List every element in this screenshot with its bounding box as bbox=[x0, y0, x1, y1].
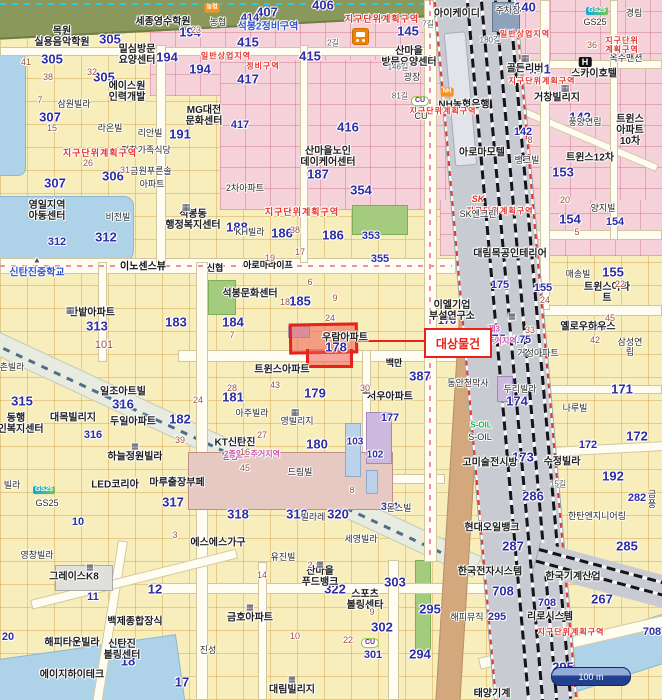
map-label: 동행 노인복지센터 bbox=[0, 413, 44, 435]
admin-boundary-line bbox=[0, 3, 430, 5]
map-label: 22 bbox=[343, 635, 353, 645]
map-label: 10 bbox=[72, 516, 84, 528]
map-label: 트윈스아파트 bbox=[580, 282, 635, 304]
map-label: 삼원빌라 bbox=[57, 99, 90, 109]
map-label: 316 bbox=[84, 429, 102, 441]
map-label: 155 bbox=[602, 266, 624, 281]
map-label: 307 bbox=[39, 111, 61, 126]
map-label: 42 bbox=[590, 335, 600, 345]
cu-logo: CU bbox=[361, 638, 379, 648]
map-label: 영창빌라 bbox=[20, 550, 53, 560]
map-label: 아주빌라 bbox=[235, 408, 268, 418]
route-line bbox=[0, 265, 452, 267]
map-label: 9 bbox=[332, 293, 337, 303]
target-property-label: 대상물건 bbox=[436, 335, 480, 352]
stream-centerline bbox=[0, 329, 476, 570]
map-label: 6 bbox=[307, 277, 312, 287]
map-label: 한밭아파트 bbox=[69, 307, 115, 318]
apartment-building bbox=[188, 452, 393, 510]
map-label: 176 bbox=[438, 315, 456, 327]
map-label: 트윈스아파트 bbox=[254, 364, 309, 375]
target-leader-line bbox=[357, 340, 424, 342]
map-label: 대목빌리지 bbox=[50, 412, 96, 423]
map-label: 170 bbox=[588, 321, 606, 333]
map-label: 282 bbox=[628, 492, 646, 504]
park bbox=[415, 560, 431, 652]
map-label: 43 bbox=[270, 380, 280, 390]
road bbox=[258, 562, 267, 700]
building-icon: ▦ bbox=[182, 202, 191, 212]
building bbox=[366, 470, 378, 494]
road bbox=[300, 45, 308, 263]
map-label: 옐로우하우스 bbox=[560, 321, 615, 332]
map-label: 금풍 bbox=[647, 489, 657, 509]
map-label: 하늘정원빌라 bbox=[107, 451, 162, 462]
map-label: 빌라 bbox=[4, 480, 21, 490]
map-label: 에이스원 인력개발 bbox=[109, 81, 146, 103]
building-icon: ▦ bbox=[291, 407, 300, 417]
map-label: 306 bbox=[102, 170, 124, 185]
building bbox=[55, 565, 113, 591]
building-icon: ▦ bbox=[66, 305, 75, 315]
map-label: 186 bbox=[271, 227, 293, 242]
map-label: 38 bbox=[43, 72, 53, 82]
map-label: 305 bbox=[99, 33, 121, 48]
map-label: 184 bbox=[222, 316, 244, 331]
train-wheel bbox=[356, 39, 359, 42]
map-label: 한탄엔지니어링 bbox=[568, 511, 626, 521]
apartment-building bbox=[497, 376, 513, 402]
map-label: 세영빌라 bbox=[344, 534, 377, 544]
map-label: 22 bbox=[615, 279, 625, 289]
map-label: 301 bbox=[364, 649, 382, 661]
map-label: 15 bbox=[47, 123, 57, 133]
map-label: 2 bbox=[307, 560, 312, 570]
map-label: KH빌라 bbox=[235, 227, 264, 237]
building-icon: ▦ bbox=[316, 561, 324, 570]
map-label: LED코리아 bbox=[91, 479, 139, 490]
map-label: 315 bbox=[11, 395, 33, 410]
target-parcel bbox=[306, 349, 353, 368]
map-label: 24 bbox=[325, 313, 335, 323]
map-label: 27 bbox=[257, 430, 267, 440]
map-label: 191 bbox=[169, 128, 191, 143]
map-label: 빌라레 bbox=[301, 512, 326, 522]
map-label: 185 bbox=[289, 295, 311, 310]
map-label: 9 bbox=[369, 607, 374, 617]
map-label: 32 bbox=[87, 67, 97, 77]
map-label: GS25 bbox=[35, 498, 58, 508]
route-line bbox=[429, 0, 431, 558]
building-icon: ▦ bbox=[288, 676, 296, 685]
map-label: 나루빌 bbox=[563, 403, 588, 413]
map-label: 삼성연립 bbox=[614, 337, 646, 357]
map-label: 7 bbox=[37, 95, 42, 105]
map-label: 31 bbox=[120, 165, 130, 175]
road bbox=[0, 47, 440, 56]
map-label: 179 bbox=[304, 387, 326, 402]
map-label: 186 bbox=[322, 229, 344, 244]
building bbox=[345, 423, 361, 477]
park bbox=[208, 280, 236, 315]
map-label: 3 bbox=[172, 530, 177, 540]
map-label: 대림빌리지 bbox=[269, 684, 315, 695]
building-icon: ▦ bbox=[246, 604, 254, 613]
water-body bbox=[0, 196, 134, 264]
map-label: 매송빌 bbox=[566, 269, 591, 279]
map-label: 라온빌 bbox=[98, 123, 123, 133]
map-label: 유진빌 bbox=[271, 552, 296, 562]
road bbox=[98, 262, 107, 362]
map-label: 305 bbox=[93, 71, 115, 86]
train-window bbox=[356, 32, 365, 37]
gs25-logo: GS25 bbox=[33, 486, 55, 494]
map-label: 28 bbox=[227, 383, 237, 393]
target-property-box: 대상물건 bbox=[424, 328, 492, 358]
map-label: 183 bbox=[165, 316, 187, 331]
water-body bbox=[0, 52, 26, 176]
map-label: 7 bbox=[229, 330, 234, 340]
map-label: 317 bbox=[162, 496, 184, 511]
map-label: 26 bbox=[83, 158, 93, 168]
map-label: 267 bbox=[591, 593, 613, 608]
map-label: 307 bbox=[44, 177, 66, 192]
map-label: 영빌리지 bbox=[280, 416, 313, 426]
scale-bar-label: 100 m bbox=[578, 672, 603, 682]
map-label: 180 bbox=[306, 438, 328, 453]
map-label: 10 bbox=[290, 631, 300, 641]
parking-building bbox=[492, 2, 520, 32]
road bbox=[388, 560, 399, 700]
road bbox=[540, 0, 550, 310]
scale-bar: 100 m bbox=[551, 667, 631, 686]
map-label: 석봉동 행정복지센터 bbox=[165, 209, 220, 231]
building-icon: ▦ bbox=[131, 443, 139, 452]
map-label: 38 bbox=[290, 225, 300, 235]
map-label: 188 bbox=[226, 221, 248, 236]
road bbox=[610, 0, 618, 240]
train-wheel bbox=[362, 39, 365, 42]
map-label: 20 bbox=[2, 631, 14, 643]
map-label: 181 bbox=[222, 391, 244, 406]
map-label: 지구단위계획구역 bbox=[63, 148, 137, 158]
map-label: 192 bbox=[602, 470, 624, 485]
park bbox=[352, 205, 408, 235]
map-label: 18 bbox=[280, 297, 290, 307]
map-label: 285 bbox=[616, 540, 638, 555]
apartment-building bbox=[366, 412, 392, 464]
train-station-icon bbox=[352, 28, 369, 45]
map-label: MG대전 문화센터 bbox=[186, 105, 223, 127]
map-label: 서우아파트 bbox=[367, 391, 413, 402]
road bbox=[156, 45, 166, 263]
map-canvas[interactable]: 3053053053073073063123123131011831841851… bbox=[0, 0, 662, 700]
